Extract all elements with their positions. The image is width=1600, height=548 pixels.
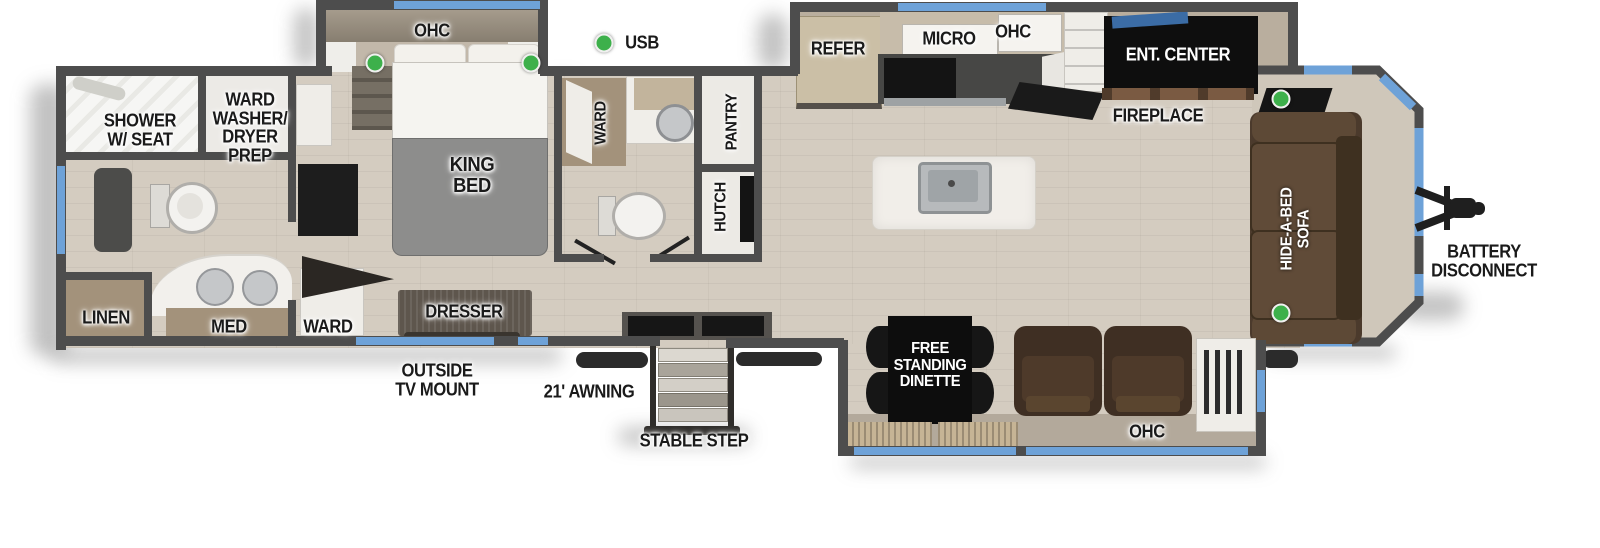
usb-dot	[1272, 304, 1291, 323]
label-pantry: PANTRY	[725, 94, 742, 151]
label-outside-tv-mount: OUTSIDE TV MOUNT	[395, 361, 479, 398]
bedroom-tv	[298, 164, 358, 236]
wall-bath-bedroom-lower	[288, 300, 296, 345]
table-leaf	[938, 422, 1018, 448]
window	[1257, 370, 1265, 412]
usb-legend-dot	[595, 34, 614, 53]
window	[1026, 447, 1248, 455]
label-king-bed: KING BED	[450, 155, 495, 197]
usb-dot	[366, 54, 385, 73]
label-ohc-dinette: OHC	[1129, 423, 1165, 442]
label-free-standing-dinette: FREE STANDING DINETTE	[894, 341, 967, 391]
label-refer: REFER	[811, 40, 865, 59]
usb-dot	[522, 54, 541, 73]
label-ohc-bedroom: OHC	[414, 22, 450, 41]
wall-pantry-hutch-divider	[700, 164, 758, 172]
stair-rail	[728, 346, 734, 432]
label-stable-step: STABLE STEP	[640, 432, 749, 451]
wall-bath-bedroom-upper	[288, 72, 296, 222]
window	[854, 447, 1016, 455]
stair-rail	[650, 346, 656, 432]
slat-grill	[1204, 350, 1246, 414]
entry-mat	[628, 316, 694, 336]
entry-mat	[702, 316, 764, 336]
bedroom-slide-wall-left	[316, 0, 326, 74]
usb-dot	[1272, 90, 1291, 109]
bedroom-closet	[296, 84, 332, 146]
label-shower: SHOWER W/ SEAT	[104, 111, 176, 148]
toilet-bowl-inner	[177, 193, 203, 219]
hitch	[1416, 186, 1485, 230]
stair-tread	[658, 348, 728, 362]
wall-bedroom-mid	[554, 72, 562, 262]
label-ward-bath: WARD	[594, 101, 611, 145]
stair-tread	[658, 378, 728, 392]
wall-bottom-entry-right	[726, 338, 844, 348]
label-med: MED	[211, 318, 247, 337]
mid-sink-counter	[634, 78, 696, 110]
wall-linen-top	[56, 272, 152, 280]
wall-bath2-bottom-left	[554, 254, 604, 262]
awning-arm	[576, 352, 648, 368]
mid-sink-bowl	[656, 104, 694, 142]
island-faucet	[948, 180, 955, 187]
label-ent-center: ENT. CENTER	[1126, 46, 1231, 65]
king-bed-sheet	[392, 62, 548, 144]
refrigerator	[796, 16, 882, 109]
dinette-chair	[866, 372, 888, 414]
kitchen-slide-wall-right	[1288, 2, 1298, 72]
label-fireplace: FIREPLACE	[1113, 107, 1204, 126]
label-ward-washer-dryer-prep: WARD WASHER/ DRYER PREP	[213, 91, 288, 166]
mid-ward-door	[566, 80, 592, 164]
label-hide-a-bed-sofa: HIDE-A-BED SOFA	[1279, 187, 1312, 270]
toilet-bowl	[612, 192, 666, 240]
floorplan-canvas: OHC SHOWER W/ SEAT WARD WASHER/ DRYER PR…	[0, 0, 1600, 548]
label-awning: 21' AWNING	[544, 383, 635, 402]
wall-shower-right	[198, 72, 206, 160]
wall-hutch-bottom	[694, 254, 762, 262]
recliner-footrest	[1026, 396, 1090, 412]
awning-arm	[1262, 350, 1298, 368]
oven-handle	[884, 98, 1006, 106]
label-dresser: DRESSER	[425, 303, 502, 322]
label-micro: MICRO	[922, 30, 975, 49]
window	[394, 1, 540, 9]
label-ohc-kitchen: OHC	[995, 23, 1031, 42]
awning-arm	[736, 352, 822, 366]
window	[57, 166, 65, 254]
stair-tread	[658, 363, 728, 377]
kitchen-slide-wall-left	[790, 2, 800, 74]
label-battery-disconnect: BATTERY DISCONNECT	[1431, 242, 1537, 279]
step-cabinet	[1064, 12, 1108, 92]
table-leaf	[846, 422, 932, 448]
window	[356, 337, 494, 345]
wall-linen-right	[144, 272, 152, 346]
label-linen: LINEN	[82, 309, 130, 328]
bath-bench	[94, 168, 132, 252]
vanity-sink	[196, 268, 234, 306]
window	[518, 337, 548, 345]
dinette-chair	[866, 326, 888, 368]
vanity-sink	[242, 270, 278, 306]
cooktop	[884, 58, 956, 100]
stair-tread	[658, 408, 728, 422]
bed-steps	[352, 66, 392, 130]
dinette-slide-wall-left	[838, 340, 848, 456]
stair-tread	[658, 393, 728, 407]
recliner-footrest	[1116, 396, 1180, 412]
label-hutch: HUTCH	[714, 182, 731, 232]
label-usb-legend: USB	[625, 34, 659, 53]
window	[898, 3, 1046, 11]
fireplace-strip	[1102, 88, 1254, 100]
label-ward-bedroom: WARD	[303, 318, 352, 337]
sofa-back	[1336, 136, 1362, 320]
